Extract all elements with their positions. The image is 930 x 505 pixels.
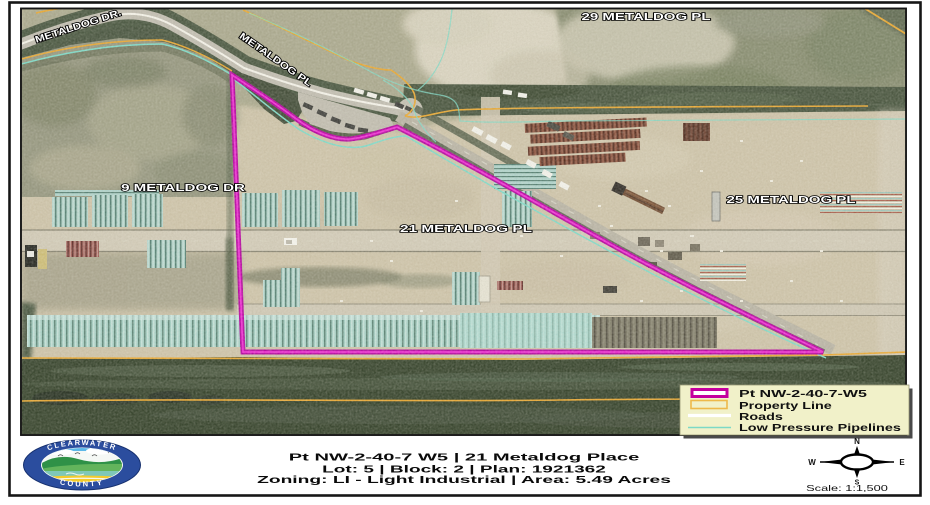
svg-text:Pt NW-2-40-7-W5: Pt NW-2-40-7-W5 [739, 388, 868, 399]
svg-text:Zoning: LI - Light Industrial: Zoning: LI - Light Industrial | Area: 5.… [257, 475, 671, 486]
svg-text:Roads: Roads [739, 411, 783, 422]
svg-text:N: N [854, 437, 860, 446]
svg-text:9 METALDOG DR: 9 METALDOG DR [121, 182, 245, 194]
svg-text:Scale: 1:1,500: Scale: 1:1,500 [806, 484, 888, 493]
svg-text:Property Line: Property Line [739, 400, 832, 411]
svg-text:Pt NW-2-40-7 W5 | 21 Metaldog: Pt NW-2-40-7 W5 | 21 Metaldog Place [289, 452, 640, 463]
svg-text:29 METALDOG PL: 29 METALDOG PL [582, 11, 711, 23]
svg-text:E: E [899, 458, 905, 467]
svg-text:W: W [808, 458, 816, 467]
svg-text:Lot: 5 | Block: 2 | Plan: 1921: Lot: 5 | Block: 2 | Plan: 1921362 [322, 464, 606, 475]
svg-text:Low Pressure Pipelines: Low Pressure Pipelines [739, 422, 901, 433]
svg-text:21 METALDOG PL: 21 METALDOG PL [400, 223, 532, 235]
svg-text:25 METALDOG PL: 25 METALDOG PL [727, 194, 856, 206]
